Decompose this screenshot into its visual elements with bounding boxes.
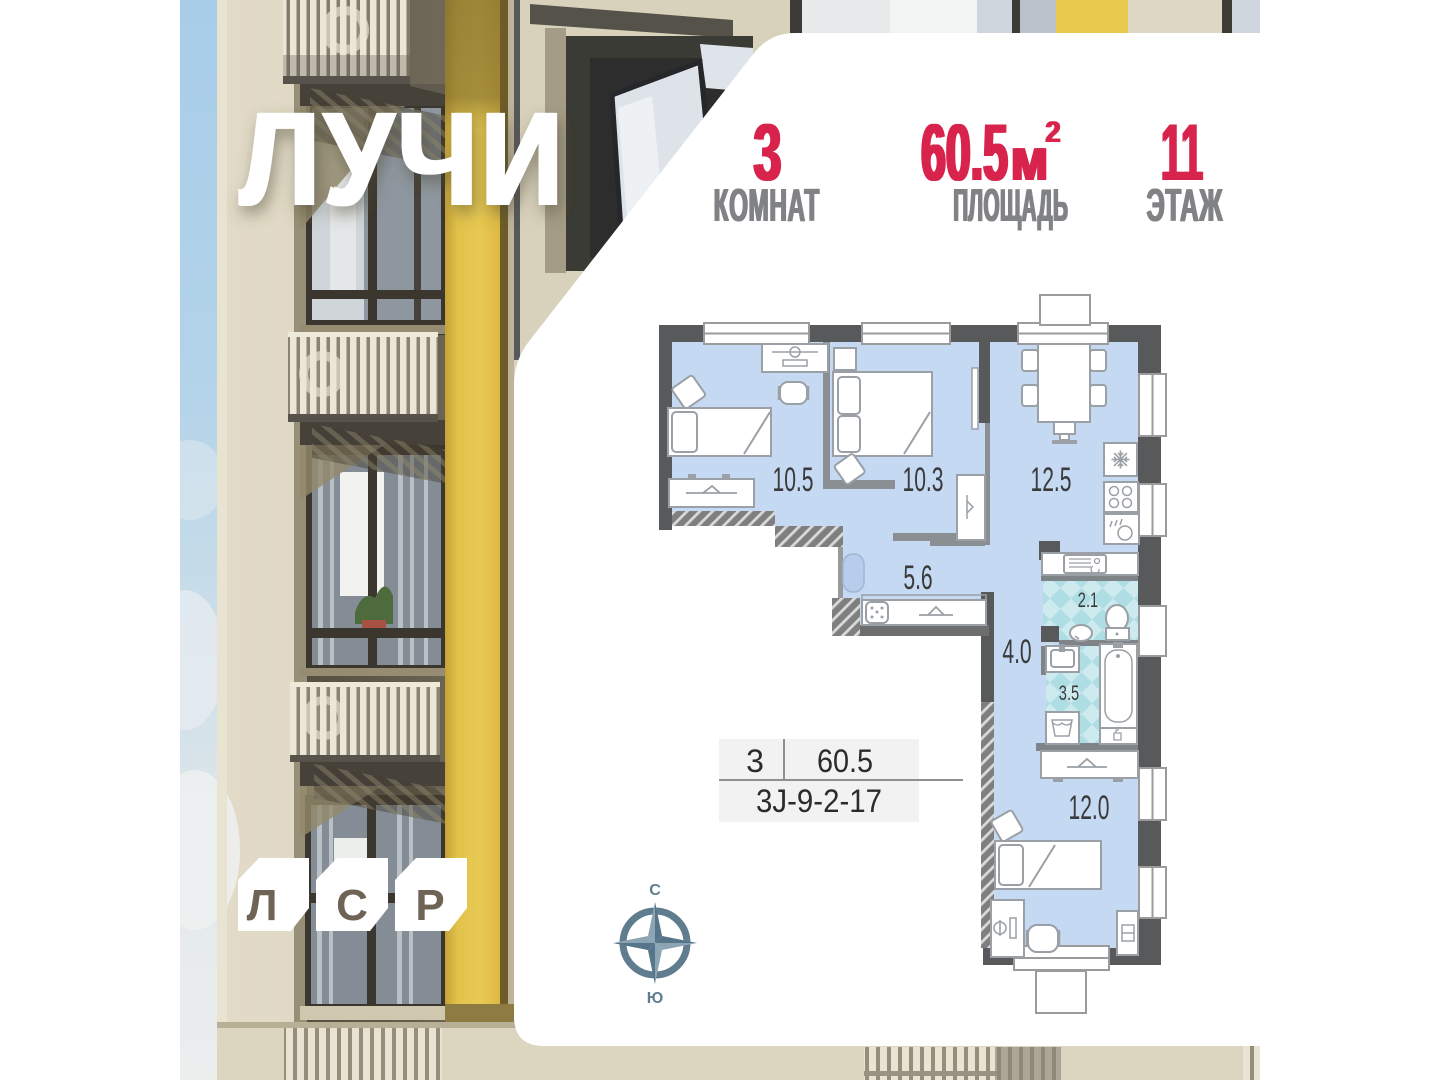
svg-text:С: С (649, 882, 661, 899)
svg-text:Л: Л (247, 881, 278, 930)
svg-text:ЛУЧИ: ЛУЧИ (242, 84, 568, 234)
svg-text:3J-9-2-17: 3J-9-2-17 (756, 783, 882, 819)
svg-text:3.5: 3.5 (1059, 681, 1079, 704)
svg-text:КОМНАТ: КОМНАТ (714, 180, 820, 231)
svg-text:60.5: 60.5 (817, 744, 873, 780)
svg-text:3: 3 (746, 743, 764, 779)
svg-text:12.5: 12.5 (1031, 460, 1072, 498)
svg-text:Р: Р (415, 881, 444, 930)
svg-text:ПЛОЩАДЬ: ПЛОЩАДЬ (954, 180, 1069, 232)
svg-text:10.5: 10.5 (773, 460, 814, 498)
svg-text:Ю: Ю (647, 990, 664, 1007)
svg-text:4.0: 4.0 (1002, 632, 1031, 670)
svg-text:ЭТАЖ: ЭТАЖ (1147, 179, 1224, 231)
svg-text:12.0: 12.0 (1069, 788, 1110, 826)
svg-text:2: 2 (1046, 116, 1061, 150)
svg-text:С: С (336, 881, 368, 930)
svg-text:5.6: 5.6 (903, 558, 932, 596)
svg-text:10.3: 10.3 (903, 460, 944, 498)
svg-text:2.1: 2.1 (1078, 588, 1098, 611)
